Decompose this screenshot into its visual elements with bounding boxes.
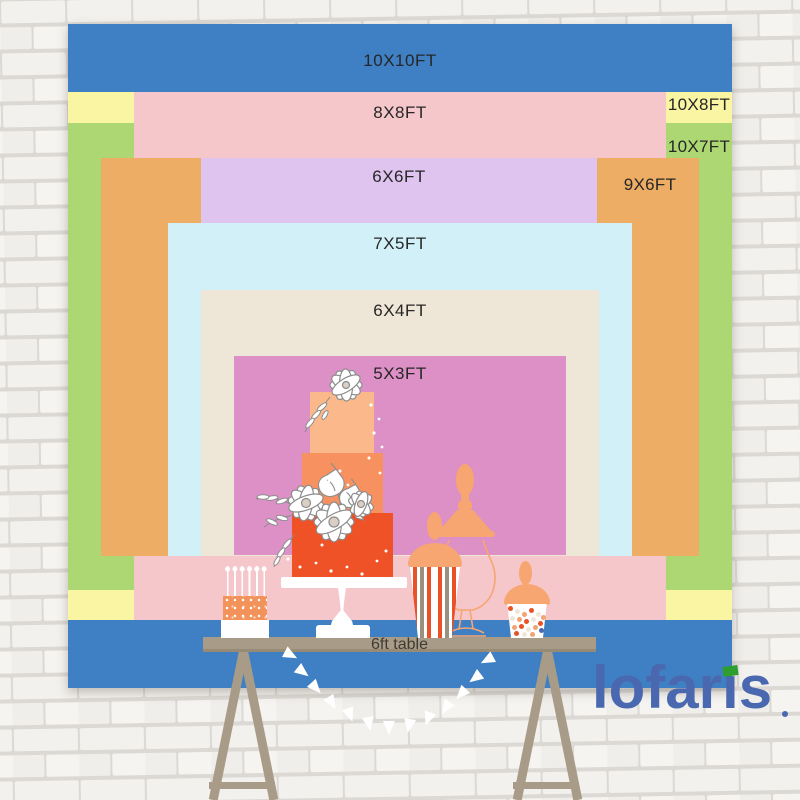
- jar-finial: [427, 512, 442, 540]
- size-label-7x5: 7X5FT: [168, 223, 632, 254]
- logo-text: lofarıs: [592, 655, 772, 721]
- mini-cake-top: [223, 596, 267, 620]
- size-label-8x8: 8X8FT: [134, 92, 666, 123]
- size-label-6x6: 6X6FT: [201, 158, 597, 187]
- birthday-candles: [224, 566, 268, 597]
- size-label-9x6: 9X6FT: [610, 175, 690, 195]
- brand-logo: lofarıs: [592, 655, 800, 727]
- size-label-10x8: 10X8FT: [664, 95, 734, 115]
- table-leg-crossbar: [209, 782, 275, 789]
- table-size-label: 6ft table: [203, 636, 596, 654]
- jar-finial: [519, 561, 532, 585]
- logo-registered-dot: [782, 711, 788, 717]
- bunting-flag: [402, 718, 416, 734]
- size-label-10x10: 10X10FT: [68, 24, 732, 71]
- cake-flowers-and-birds: [230, 355, 410, 585]
- size-label-10x7: 10X7FT: [662, 137, 736, 157]
- size-label-6x4: 6X4FT: [201, 290, 599, 321]
- candy-dots: [508, 606, 513, 611]
- bunting-flag: [383, 721, 395, 735]
- logo-green-mark: [722, 665, 738, 677]
- jar-striped-cup: [410, 567, 460, 638]
- bunting-flag: [362, 716, 376, 732]
- table-leg-crossbar: [513, 782, 579, 789]
- product-image: 10X10FT 8X8FT 6X6FT 7X5FT 6X4FT 5X3FT 10…: [0, 0, 800, 800]
